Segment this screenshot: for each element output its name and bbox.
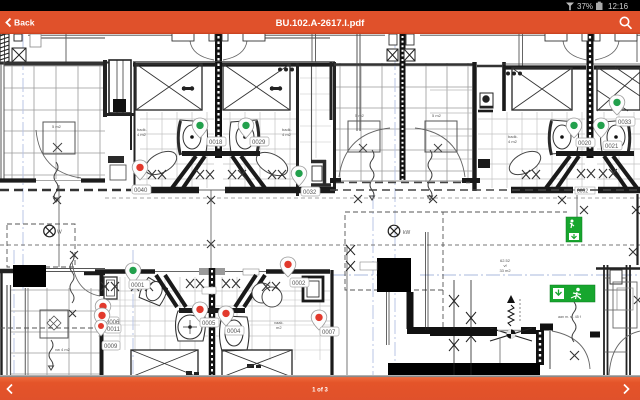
svg-text:0007: 0007 (322, 330, 336, 336)
svg-text:12:16: 12:16 (608, 2, 629, 11)
svg-text:W: W (57, 230, 62, 236)
svg-text:0033: 0033 (618, 120, 632, 126)
svg-text:kW: kW (403, 230, 411, 236)
svg-text:0001: 0001 (131, 283, 145, 289)
svg-text:0021: 0021 (605, 144, 619, 150)
svg-text:0011: 0011 (107, 327, 121, 333)
svg-text:4 m2: 4 m2 (282, 132, 292, 137)
svg-text:0018: 0018 (209, 140, 223, 146)
svg-text:0020: 0020 (578, 141, 592, 147)
svg-text:0040: 0040 (134, 188, 148, 194)
svg-text:vw 4 m2: vw 4 m2 (55, 347, 71, 352)
svg-text:BU.102.A-2617.I.pdf: BU.102.A-2617.I.pdf (276, 18, 366, 29)
svg-text:37%: 37% (577, 2, 593, 11)
svg-text:4 m2: 4 m2 (508, 139, 518, 144)
svg-text:33 m2: 33 m2 (499, 268, 511, 273)
svg-text:4 m2: 4 m2 (137, 132, 147, 137)
svg-text:5 m2: 5 m2 (432, 113, 442, 118)
svg-text:aan m. st. 45 f: aan m. st. 45 f (558, 315, 581, 319)
svg-text:1 of 3: 1 of 3 (312, 388, 328, 394)
svg-text:0002: 0002 (292, 281, 306, 287)
svg-text:Back: Back (14, 18, 35, 28)
svg-text:5 m2: 5 m2 (355, 113, 365, 118)
svg-text:0004: 0004 (227, 329, 241, 335)
svg-text:0009: 0009 (104, 344, 118, 350)
svg-text:0005: 0005 (202, 321, 216, 327)
svg-text:5 m2: 5 m2 (52, 124, 62, 129)
svg-text:0029: 0029 (252, 140, 266, 146)
svg-text:m2: m2 (276, 325, 282, 330)
svg-text:0032: 0032 (303, 190, 317, 196)
